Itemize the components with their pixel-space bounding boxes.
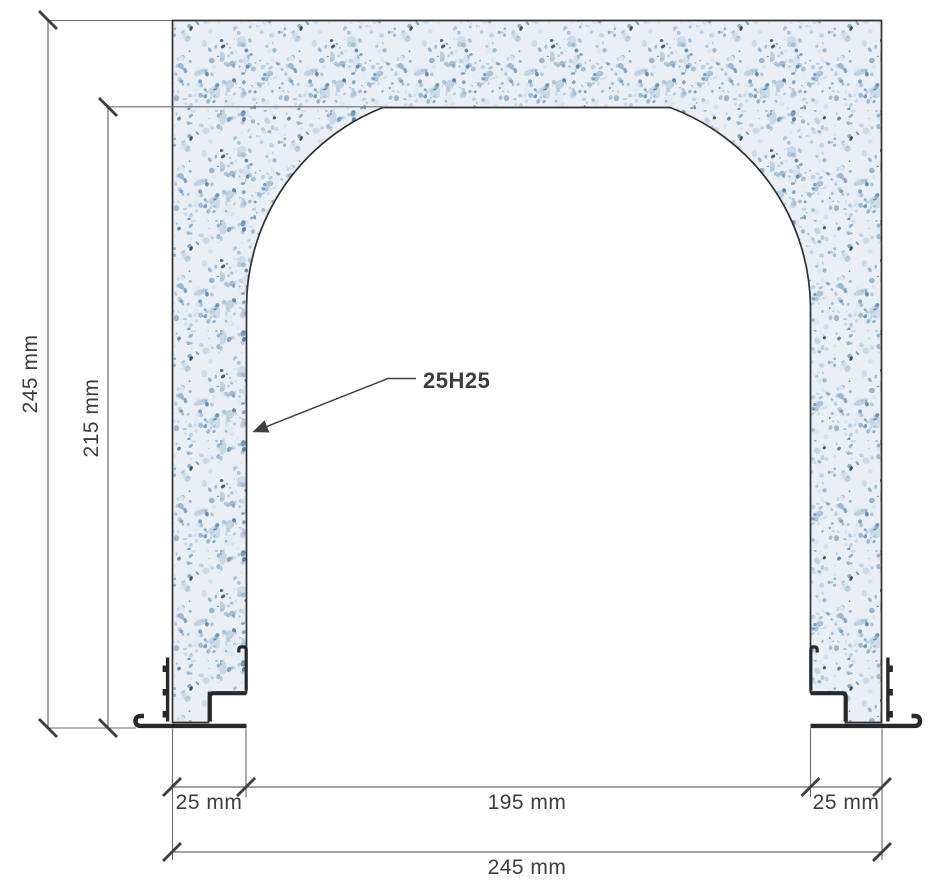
label-outer-height: 245 mm [19, 335, 42, 414]
technical-drawing: 245 mm 215 mm 25 mm 195 mm 25 mm 245 mm … [0, 0, 937, 891]
label-left-wall: 25 mm [176, 791, 243, 814]
label-total-width: 245 mm [488, 856, 567, 879]
label-opening-width: 195 mm [488, 791, 567, 814]
label-inner-height: 215 mm [80, 379, 103, 458]
label-right-wall: 25 mm [813, 791, 880, 814]
rebar-callout: 25H25 [423, 368, 490, 393]
